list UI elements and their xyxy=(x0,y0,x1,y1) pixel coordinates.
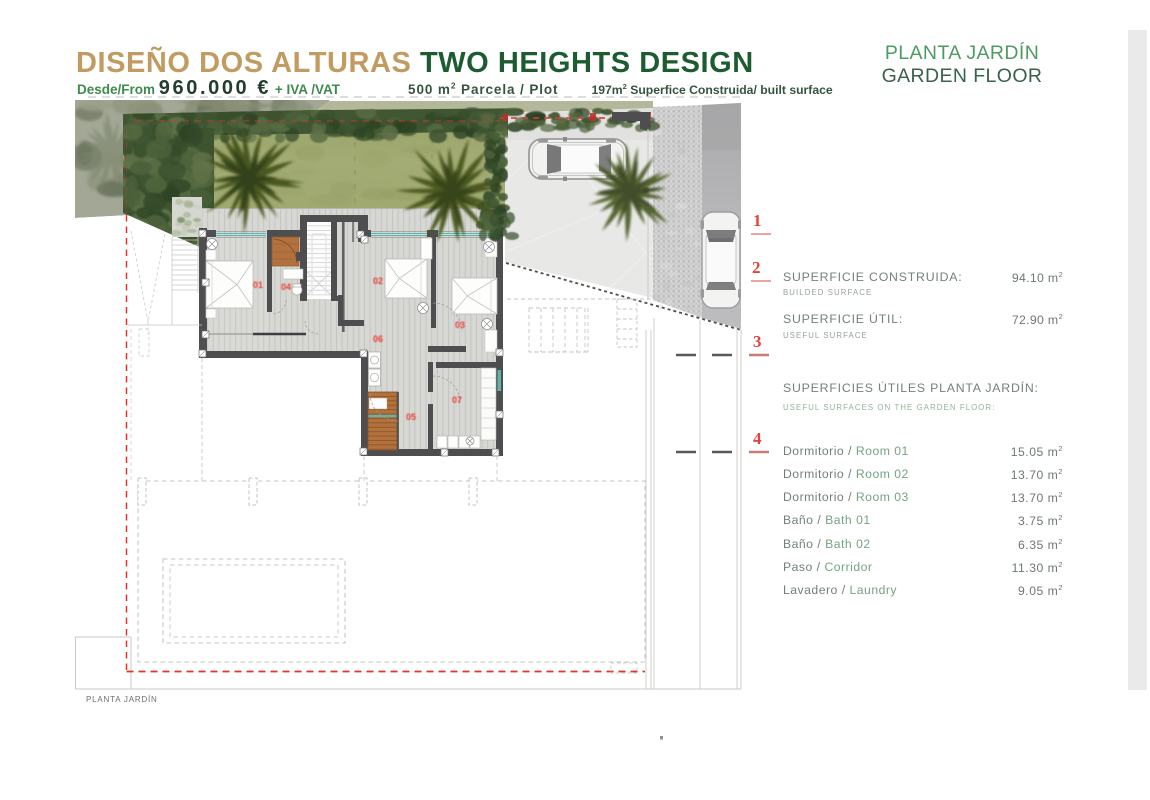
svg-text:01: 01 xyxy=(253,280,263,290)
svg-text:06: 06 xyxy=(373,334,383,344)
svg-text:07: 07 xyxy=(452,395,462,405)
svg-text:05: 05 xyxy=(406,412,416,422)
svg-text:04: 04 xyxy=(281,282,291,292)
svg-text:02: 02 xyxy=(373,276,383,286)
svg-text:03: 03 xyxy=(455,320,465,330)
